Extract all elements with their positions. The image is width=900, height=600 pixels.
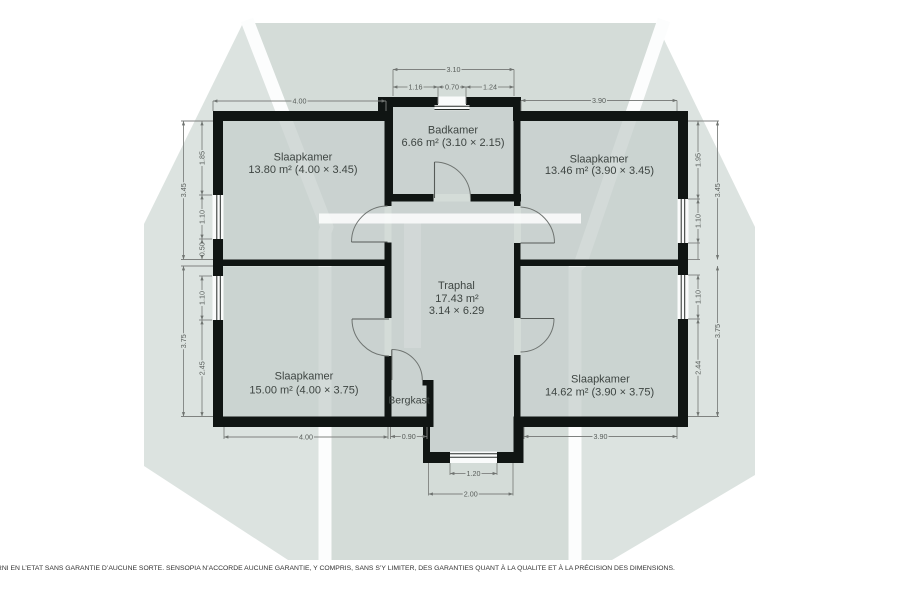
svg-text:Slaapkamer: Slaapkamer bbox=[274, 151, 333, 163]
svg-text:1.10: 1.10 bbox=[198, 210, 207, 224]
svg-text:3.45: 3.45 bbox=[713, 183, 722, 197]
svg-text:4.00: 4.00 bbox=[299, 433, 313, 442]
svg-text:4.00: 4.00 bbox=[293, 97, 307, 106]
svg-text:1.10: 1.10 bbox=[694, 214, 703, 228]
svg-text:13.80 m² (4.00 × 3.45): 13.80 m² (4.00 × 3.45) bbox=[248, 164, 357, 176]
svg-text:1.95: 1.95 bbox=[694, 153, 703, 167]
svg-text:1.10: 1.10 bbox=[694, 290, 703, 304]
svg-text:0.70: 0.70 bbox=[445, 83, 459, 92]
svg-text:1.16: 1.16 bbox=[409, 83, 423, 92]
svg-text:15.00 m² (4.00 × 3.75): 15.00 m² (4.00 × 3.75) bbox=[249, 384, 358, 396]
svg-text:3.75: 3.75 bbox=[713, 324, 722, 338]
svg-text:2.44: 2.44 bbox=[694, 361, 703, 375]
svg-text:URNI EN L’ETAT SANS GARANTIE D: URNI EN L’ETAT SANS GARANTIE D’AUCUNE SO… bbox=[0, 563, 675, 572]
svg-text:Slaapkamer: Slaapkamer bbox=[570, 153, 629, 165]
svg-text:0.50: 0.50 bbox=[198, 242, 207, 256]
svg-text:3.90: 3.90 bbox=[592, 96, 606, 105]
svg-text:17.43 m²: 17.43 m² bbox=[435, 293, 479, 305]
svg-text:3.14 × 6.29: 3.14 × 6.29 bbox=[429, 305, 484, 317]
svg-text:Slaapkamer: Slaapkamer bbox=[275, 371, 334, 383]
svg-text:1.85: 1.85 bbox=[198, 151, 207, 165]
svg-text:3.10: 3.10 bbox=[447, 65, 461, 74]
svg-text:1.10: 1.10 bbox=[198, 291, 207, 305]
svg-text:3.90: 3.90 bbox=[594, 432, 608, 441]
svg-text:3.75: 3.75 bbox=[179, 334, 188, 348]
svg-text:13.46 m² (3.90 × 3.45): 13.46 m² (3.90 × 3.45) bbox=[545, 165, 654, 177]
svg-text:0.90: 0.90 bbox=[402, 432, 416, 441]
svg-text:14.62 m² (3.90 × 3.75): 14.62 m² (3.90 × 3.75) bbox=[545, 387, 654, 399]
svg-text:Slaapkamer: Slaapkamer bbox=[571, 373, 630, 385]
svg-text:6.66 m² (3.10 × 2.15): 6.66 m² (3.10 × 2.15) bbox=[401, 137, 504, 149]
svg-text:3.45: 3.45 bbox=[179, 183, 188, 197]
svg-text:Badkamer: Badkamer bbox=[428, 125, 478, 137]
svg-text:2.00: 2.00 bbox=[464, 490, 478, 499]
svg-text:Traphal: Traphal bbox=[438, 280, 475, 292]
svg-text:1.20: 1.20 bbox=[467, 469, 481, 478]
svg-text:1.24: 1.24 bbox=[483, 83, 497, 92]
svg-text:Bergkast: Bergkast bbox=[388, 395, 430, 407]
svg-text:2.45: 2.45 bbox=[198, 361, 207, 375]
